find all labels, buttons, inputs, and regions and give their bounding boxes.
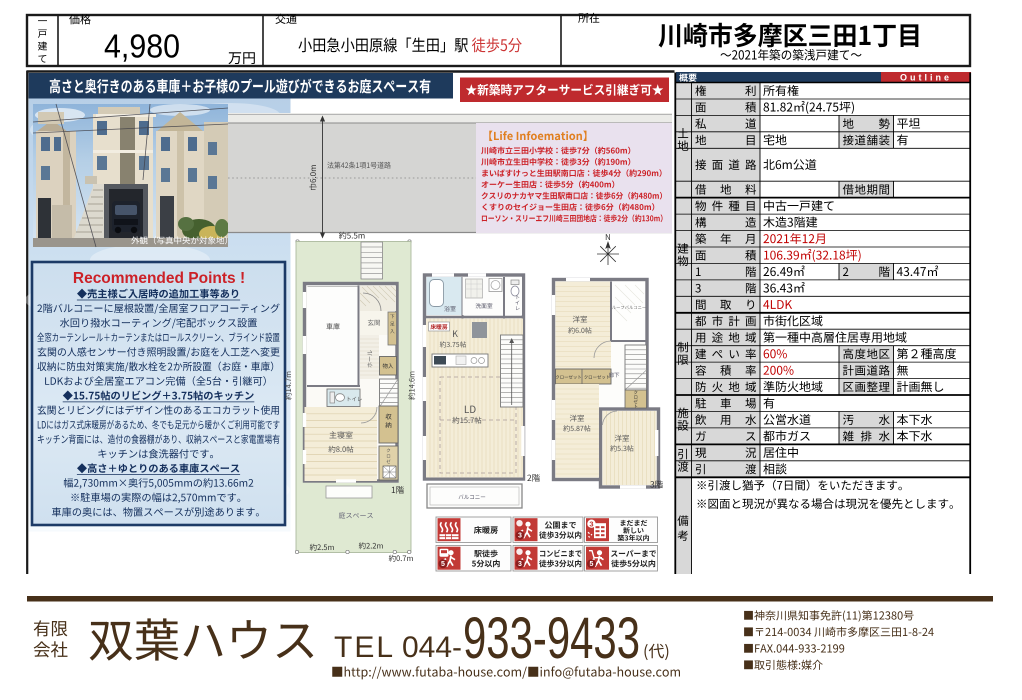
svg-text:5: 5 [441, 561, 445, 568]
svg-text:4,980: 4,980 [104, 28, 180, 65]
svg-text:5: 5 [590, 561, 594, 568]
svg-text:Recommended Points !: Recommended Points ! [73, 270, 245, 287]
svg-text:044-: 044- [402, 631, 462, 664]
svg-text:TEL: TEL [334, 631, 395, 664]
svg-text:3: 3 [518, 561, 522, 568]
svg-text:933-9433: 933-9433 [463, 606, 640, 671]
svg-text:3: 3 [589, 520, 593, 529]
svg-text:3: 3 [518, 533, 522, 540]
svg-text:Outline: Outline [900, 72, 952, 82]
